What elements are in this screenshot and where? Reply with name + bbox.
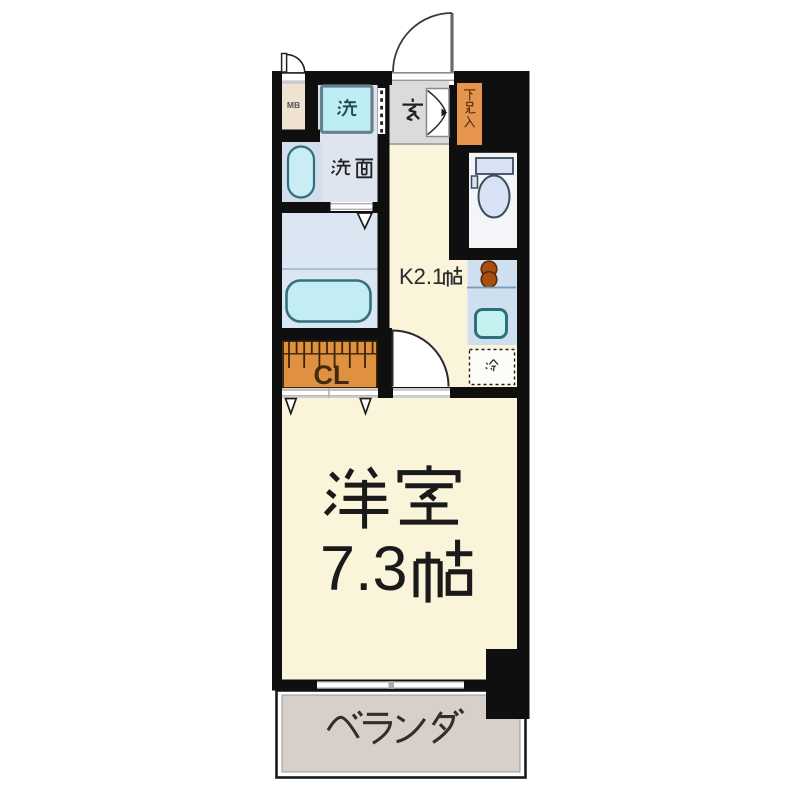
svg-text:K2.1: K2.1	[399, 264, 444, 289]
svg-text:CL: CL	[314, 360, 350, 390]
svg-text:7.3: 7.3	[320, 534, 408, 604]
svg-text:MB: MB	[287, 100, 300, 110]
